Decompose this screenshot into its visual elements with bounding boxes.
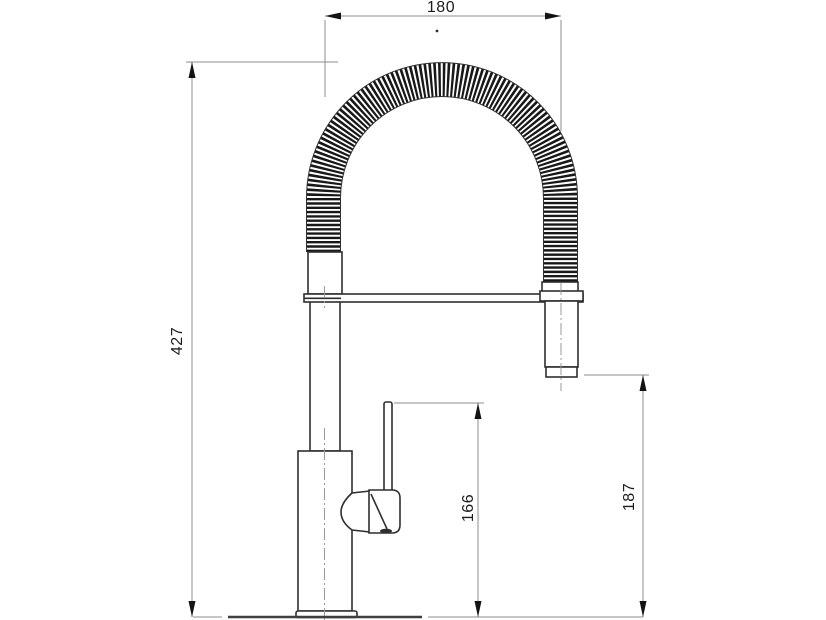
arrow-427-bottom (189, 601, 196, 617)
centerlines (325, 283, 562, 620)
dimension-spout-height (584, 375, 649, 617)
arrow-187-bottom (640, 601, 647, 617)
faucet-technical-drawing: 180 427 166 187 (0, 0, 826, 620)
arrow-166-top (475, 403, 482, 419)
spring-inner-edge (341, 97, 544, 282)
arrow-166-bottom (475, 601, 482, 617)
arrow-187-top (640, 375, 647, 391)
drawing-canvas (0, 0, 826, 620)
dim-label-spout-height: 187 (622, 483, 638, 511)
dim-label-handle-height: 166 (461, 494, 477, 522)
spring-coil (324, 79, 561, 282)
dim-label-total-height: 427 (170, 327, 186, 355)
handle-set-screw (380, 529, 392, 534)
arrow-180-right (545, 13, 561, 20)
spring-outer-edge (307, 63, 578, 282)
dim-label-top-width: 180 (427, 0, 455, 16)
handle-block (369, 490, 400, 533)
center-mark-dot (436, 30, 439, 33)
arrow-180-left (325, 13, 341, 20)
arrow-427-top (189, 62, 196, 78)
spring-hose (307, 63, 578, 282)
spout-collar (542, 282, 578, 292)
lever-rod (384, 402, 392, 492)
